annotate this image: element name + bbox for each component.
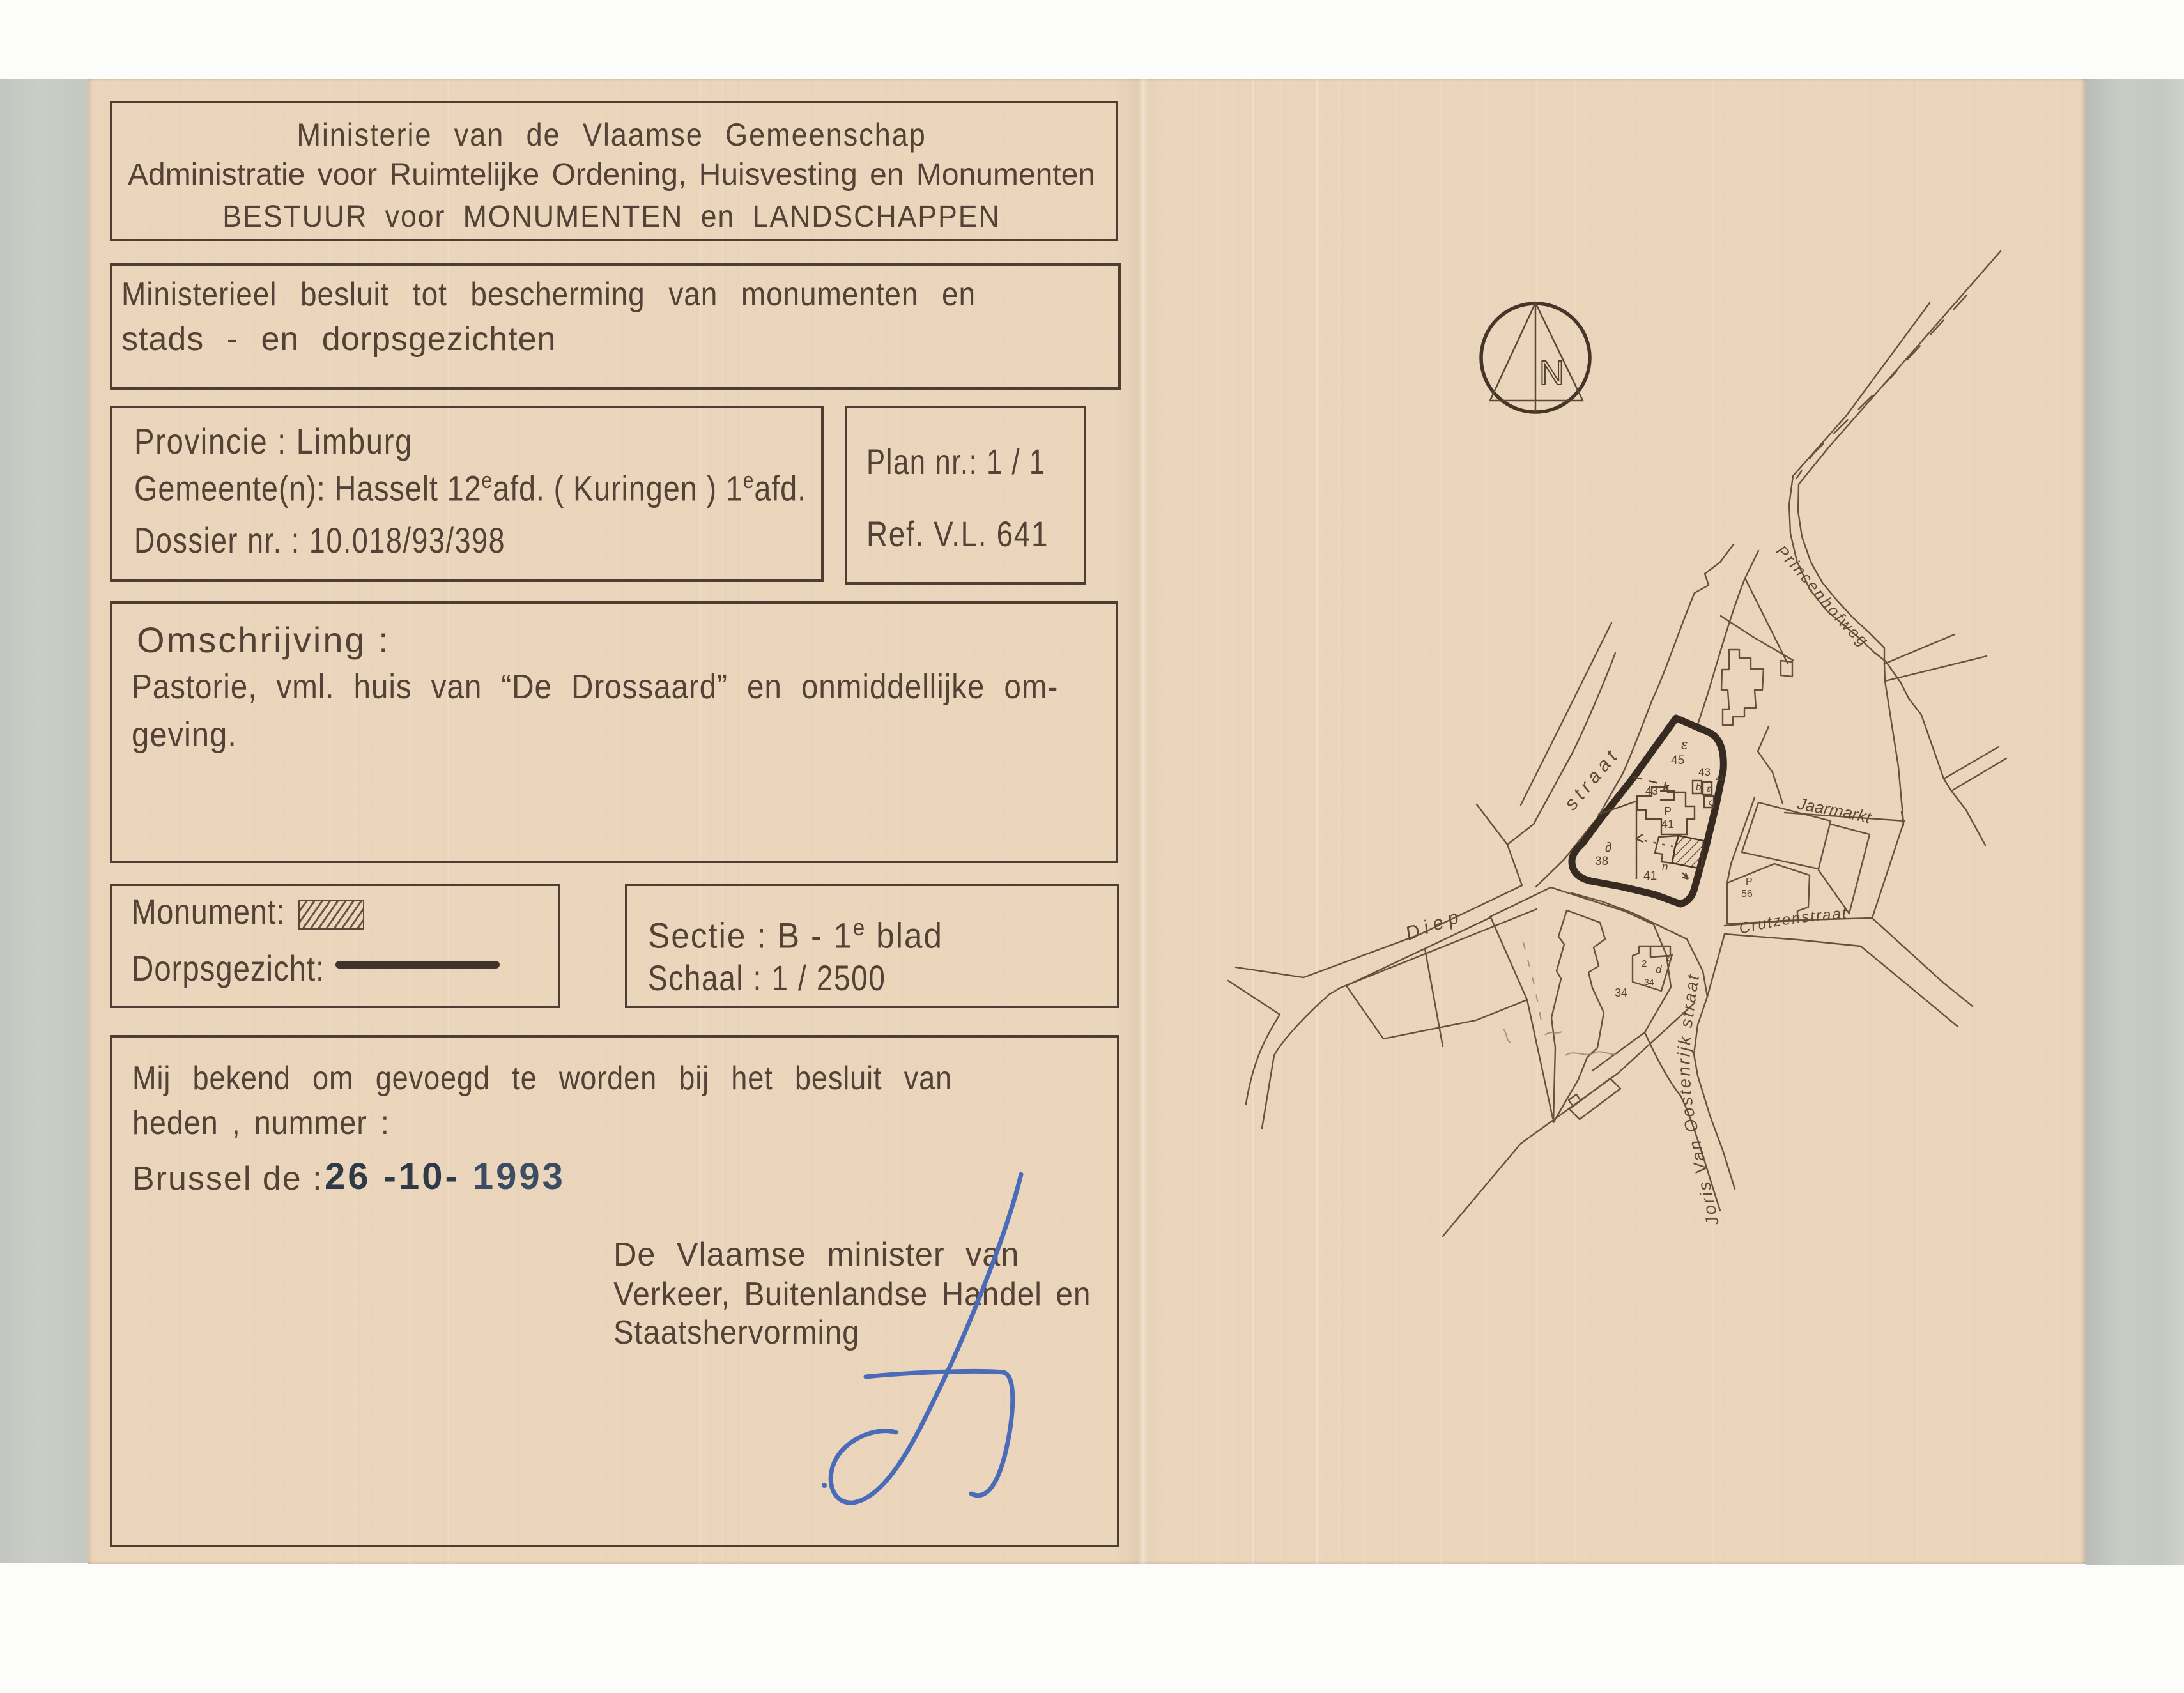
svg-text:41: 41	[1643, 869, 1657, 883]
svg-text:N: N	[1539, 354, 1564, 392]
svg-text:n: n	[1662, 861, 1668, 873]
svg-text:2: 2	[1666, 955, 1670, 963]
svg-text:Jaarmarkt: Jaarmarkt	[1796, 793, 1874, 827]
svg-text:P: P	[1664, 805, 1672, 818]
svg-text:43: 43	[1698, 766, 1711, 778]
svg-text:34: 34	[1615, 986, 1627, 999]
svg-text:Princenhofweg: Princenhofweg	[1773, 542, 1873, 650]
svg-text:2: 2	[1642, 958, 1647, 969]
svg-text:ς: ς	[1709, 797, 1713, 807]
svg-text:Joris Van Oostenrijk straat: Joris Van Oostenrijk straat	[1674, 972, 1723, 1228]
svg-text:P: P	[1746, 877, 1753, 887]
svg-text:∂: ∂	[1605, 840, 1611, 855]
svg-text:ε: ε	[1707, 783, 1711, 793]
svg-text:43: 43	[1645, 785, 1658, 797]
svg-text:56: 56	[1741, 889, 1753, 900]
svg-text:k: k	[1663, 779, 1670, 795]
svg-text:41: 41	[1661, 818, 1674, 831]
svg-text:34: 34	[1644, 977, 1654, 987]
svg-text:d: d	[1656, 963, 1662, 976]
svg-text:Crutzenstraat: Crutzenstraat	[1737, 905, 1849, 938]
svg-text:b: b	[1696, 782, 1701, 793]
svg-text:44: 44	[1716, 774, 1725, 783]
svg-text:Diep: Diep	[1403, 905, 1466, 944]
svg-text:ε: ε	[1681, 737, 1688, 753]
svg-text:38: 38	[1595, 855, 1608, 868]
svg-text:45: 45	[1671, 754, 1684, 767]
